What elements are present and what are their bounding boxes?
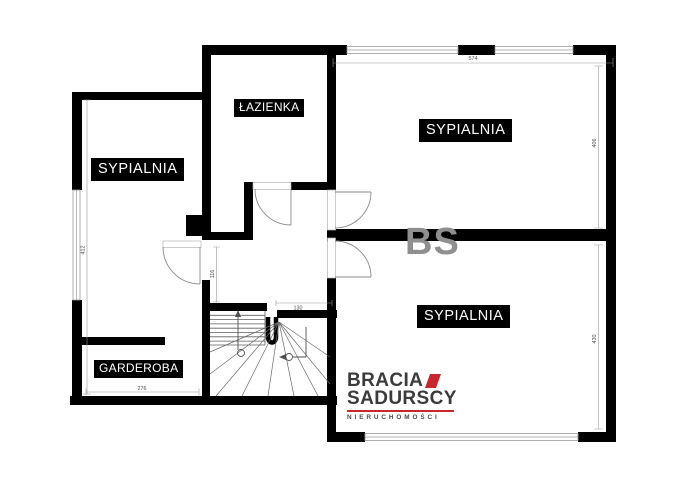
logo-roof-mark-icon <box>425 374 441 388</box>
logo-tagline: NIERUCHOMOŚCI <box>347 414 477 421</box>
windows <box>73 47 578 441</box>
room-label-garderoba: GARDEROBA <box>94 360 183 378</box>
stair-winder-fan <box>210 322 330 396</box>
room-label-sypialnia-left: SYPIALNIA <box>91 158 184 181</box>
dimension-value-top: 574 <box>469 56 478 62</box>
door-swing-bedroom-left <box>163 247 200 284</box>
dimension-value-right-upper: 406 <box>592 139 598 148</box>
walls <box>70 45 616 442</box>
dimension-value-right-lower: 430 <box>592 335 598 344</box>
wall-segment <box>72 92 82 190</box>
wall-segment <box>277 310 337 318</box>
wall-segment <box>291 182 336 190</box>
dimension-value-hall: 116 <box>210 270 216 279</box>
door-opening-bedroom-bottom <box>328 238 336 278</box>
door-swing-bedroom-top <box>335 192 371 228</box>
brand-logo: BRACIA SADURSCY NIERUCHOMOŚCI <box>347 372 477 421</box>
wall-segment <box>327 45 336 190</box>
stair-treads <box>210 315 265 341</box>
logo-divider-rule <box>347 410 454 412</box>
wall-segment <box>244 182 253 240</box>
door-opening-bedroom-top <box>328 190 336 230</box>
wall-segment <box>72 92 202 100</box>
room-label-lazienka: ŁAZIENKA <box>234 99 304 117</box>
wall-segment <box>202 280 210 396</box>
door-opening-bedroom-left <box>163 241 201 248</box>
wall-segment <box>578 432 616 442</box>
wall-segment <box>202 45 211 240</box>
wall-segment <box>336 229 606 241</box>
door-swing-bedroom-bottom <box>335 241 371 277</box>
wall-segment <box>606 45 616 442</box>
wall-segment <box>202 45 347 55</box>
wall-segment <box>202 303 267 311</box>
door-swing-bathroom <box>255 189 291 225</box>
stair-walkline-arrow-up <box>235 310 241 317</box>
floorplan-canvas: 574 406 430 412 116 276 130 ŁAZIENKA SYP… <box>0 0 677 500</box>
dimension-value-garderoba: 276 <box>138 386 147 392</box>
wall-segment <box>202 232 253 240</box>
logo-brand-name-2: SADURSCY <box>347 390 477 408</box>
wall-segment <box>70 396 337 405</box>
watermark-bs: BS <box>405 221 460 264</box>
floorplan-drawing: 574 406 430 412 116 276 130 <box>0 0 677 500</box>
stair-walkline2-arrow <box>279 354 286 360</box>
wall-segment <box>72 300 82 405</box>
wall-segment <box>458 45 495 55</box>
stair-walkline2-start <box>286 354 293 361</box>
room-label-sypialnia-bottom: SYPIALNIA <box>417 305 510 328</box>
dimension-value-stair: 130 <box>294 306 303 312</box>
door-opening-bathroom <box>253 183 291 190</box>
dimension-line-stair <box>276 300 332 306</box>
room-label-sypialnia-top: SYPIALNIA <box>419 119 512 142</box>
wall-segment <box>327 278 336 442</box>
duct-block <box>186 215 207 236</box>
dimension-value-left: 412 <box>81 246 87 255</box>
